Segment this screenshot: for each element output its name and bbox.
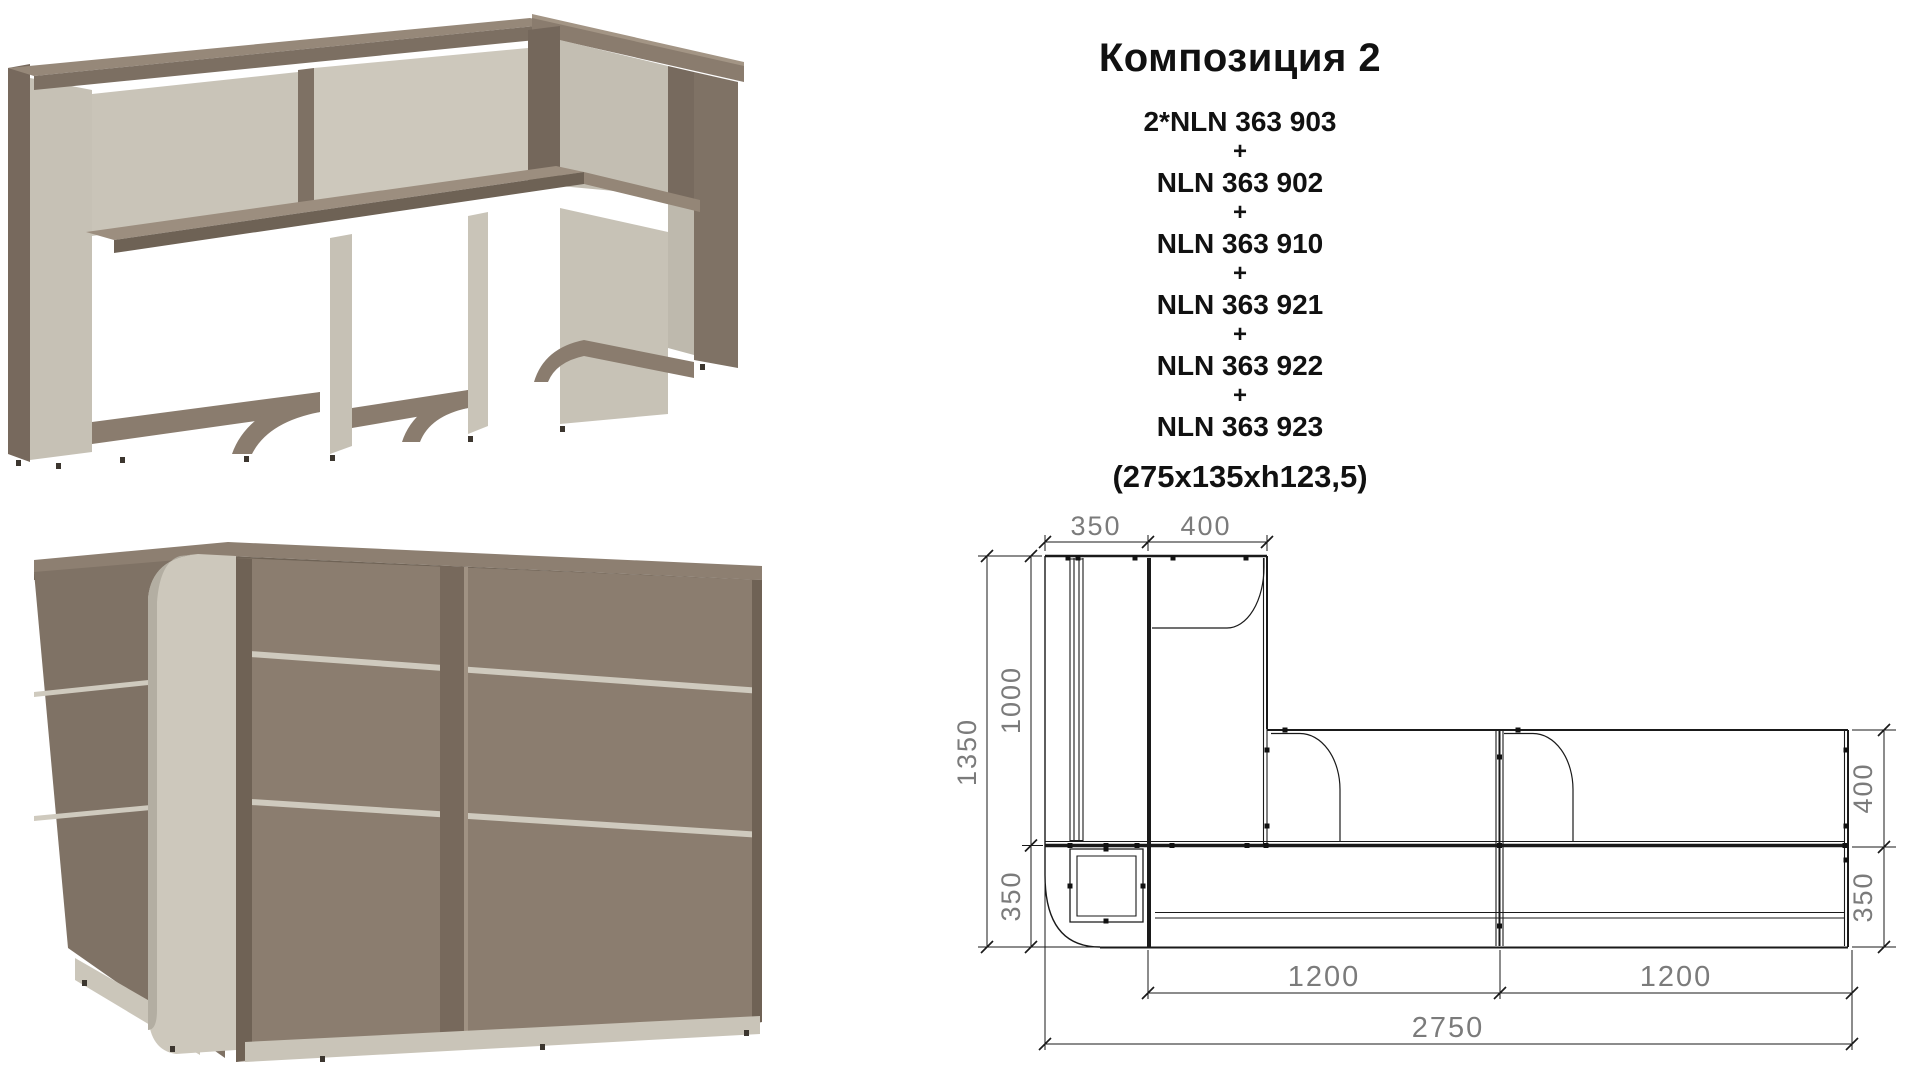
dimension-labels: 350 400 1350 1000 350 400 350 1200 1200 … <box>952 511 1878 1044</box>
return-edge-post <box>668 66 694 206</box>
dim-bottom-1200-a: 1200 <box>1288 961 1361 993</box>
left-end-inner-panel <box>30 78 92 460</box>
dim-left-350: 350 <box>996 870 1026 921</box>
front-face <box>236 558 762 1062</box>
dimension-lines <box>978 535 1896 1050</box>
plus-separator: + <box>1040 260 1440 288</box>
catalog-page: { "page": { "background": "#ffffff" }, "… <box>0 0 1920 1080</box>
dim-left-1350: 1350 <box>952 718 982 786</box>
plus-separator: + <box>1040 138 1440 166</box>
desk-back-view <box>8 14 744 469</box>
pilaster-highlight <box>464 567 468 1040</box>
mid-divider <box>298 68 314 207</box>
plus-separator: + <box>1040 199 1440 227</box>
lower-divider-2 <box>468 212 488 434</box>
item-code: 2*NLN 363 903 <box>1040 105 1440 138</box>
plus-separator: + <box>1040 321 1440 349</box>
dimension-ticks <box>981 536 1890 1050</box>
return-front-inner-panel <box>560 208 668 424</box>
reception-desk-back-view-render <box>0 10 800 490</box>
dim-left-1000: 1000 <box>996 666 1026 734</box>
plan-outline <box>1045 556 1848 948</box>
dim-right-350: 350 <box>1848 871 1878 922</box>
corner-column <box>148 554 236 1054</box>
item-code: NLN 363 922 <box>1040 349 1440 382</box>
corner-curve-detail <box>1227 567 1264 628</box>
module-2-curve <box>1504 734 1573 842</box>
item-code: NLN 363 910 <box>1040 227 1440 260</box>
lower-divider-1 <box>330 234 352 454</box>
left-end-panel <box>8 64 30 462</box>
screen-wall-lines <box>1070 558 1083 841</box>
desk-front-view <box>34 542 762 1062</box>
module-1-curve <box>1271 734 1340 842</box>
plan-drawing: 350 400 1350 1000 350 400 350 1200 1200 … <box>940 500 1920 1080</box>
dim-bottom-2750: 2750 <box>1412 1012 1485 1044</box>
dim-top-350: 350 <box>1070 511 1121 541</box>
front-right-edge <box>752 580 762 1024</box>
item-code-list: 2*NLN 363 903 + NLN 363 902 + NLN 363 91… <box>1040 105 1440 443</box>
front-mid-pilaster <box>440 566 464 1046</box>
item-code: NLN 363 902 <box>1040 166 1440 199</box>
item-code: NLN 363 923 <box>1040 410 1440 443</box>
dim-right-400: 400 <box>1848 762 1878 813</box>
item-code: NLN 363 921 <box>1040 288 1440 321</box>
connector-marks <box>1066 556 1849 929</box>
composition-info: Композиция 2 2*NLN 363 903 + NLN 363 902… <box>1040 36 1440 495</box>
composition-title: Композиция 2 <box>1040 36 1440 81</box>
plus-separator: + <box>1040 382 1440 410</box>
reception-desk-front-view-render <box>20 510 780 1070</box>
front-left-edge <box>236 558 252 1062</box>
right-end-inner <box>668 200 694 355</box>
right-end-panel <box>694 72 738 368</box>
dim-bottom-1200-b: 1200 <box>1640 961 1713 993</box>
dim-top-400: 400 <box>1180 511 1231 541</box>
corner-pedestal <box>1070 849 1143 922</box>
overall-dimensions: (275x135xh123,5) <box>1040 459 1440 495</box>
